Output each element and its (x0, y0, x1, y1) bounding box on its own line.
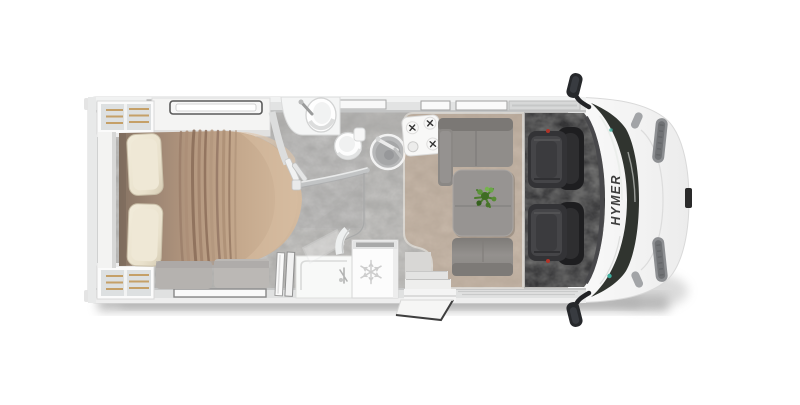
svg-text:HYMER: HYMER (609, 174, 623, 225)
